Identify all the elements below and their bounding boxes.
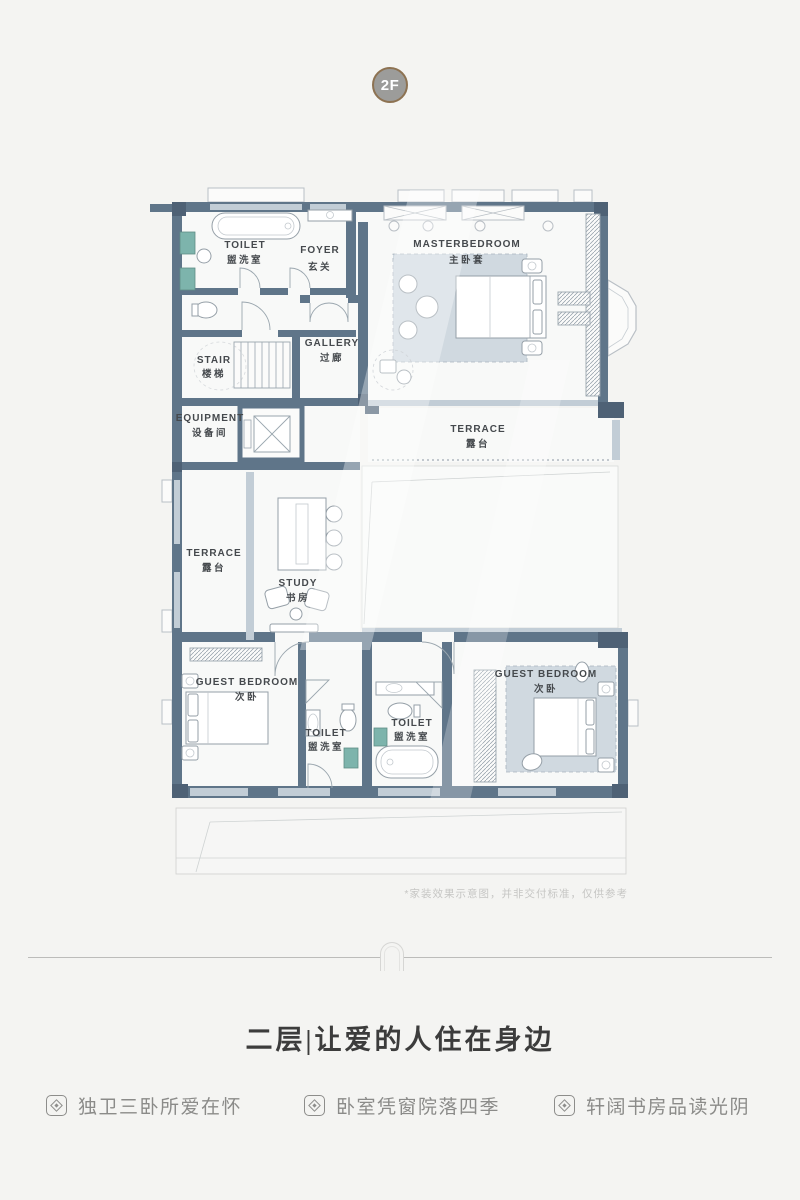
feature-item-3: 轩阔书房品读光阴 [554,1092,750,1119]
feature-item-1: 独卫三卧所爱在怀 [46,1092,242,1119]
vanity-cabinet [374,728,387,746]
label-terrace-right-en: TERRACE [450,424,505,435]
divider-ornament [380,942,404,971]
floor-plan: TOILET 盥洗室 FOYER 玄关 MASTERBEDROOM 主卧套 ST… [150,180,650,890]
label-stair-en: STAIR [197,355,231,366]
label-equipment-en: EQUIPMENT [176,413,244,424]
bay-window [608,280,636,356]
vanity-counter [376,682,434,695]
label-guest-left-cn: 次卧 [235,691,259,703]
label-guest-right-en: GUEST BEDROOM [495,669,597,680]
roof-outline [176,808,626,874]
label-foyer-cn: 玄关 [308,261,332,273]
label-terrace-right-cn: 露台 [466,438,490,450]
study-desk [278,498,326,570]
section-title: 二层|让爱的人住在身边 [0,1018,800,1057]
wc-toilet [388,703,412,719]
diamond-badge-icon [554,1095,575,1116]
label-study-en: STUDY [279,578,318,589]
vanity-cabinet [344,748,358,768]
label-toilet-main-cn: 盥洗室 [227,254,263,266]
divider-ornament-inner [384,946,400,971]
floor-badge: 2F [372,67,408,103]
feature-list: 独卫三卧所爱在怀 卧室凭窗院落四季 轩阔书房品读光阴 [0,1092,800,1122]
vanity-cabinet [180,268,195,290]
feature-label-1: 独卫三卧所爱在怀 [78,1092,242,1119]
feature-item-2: 卧室凭窗院落四季 [304,1092,500,1119]
label-guest-right-cn: 次卧 [534,683,558,695]
label-toilet-main-en: TOILET [224,240,265,251]
label-foyer-en: FOYER [300,245,339,256]
label-equipment-cn: 设备间 [192,427,228,439]
floorplan-page: 2F [0,0,800,1200]
diamond-badge-icon [46,1095,67,1116]
label-toilet-center-cn: 盥洗室 [394,731,430,743]
label-toilet-center-en: TOILET [391,718,432,729]
label-gallery-cn: 过廊 [320,352,344,364]
elevator [240,406,302,460]
label-gallery-en: GALLERY [305,338,359,349]
label-toilet-small-cn: 盥洗室 [308,741,344,753]
label-terrace-left-en: TERRACE [186,548,241,559]
label-master-cn: 主卧套 [449,254,485,266]
label-stair-cn: 楼梯 [202,368,226,380]
vanity-cabinet [180,232,195,254]
label-study-cn: 书房 [286,592,310,604]
feature-label-2: 卧室凭窗院落四季 [336,1092,500,1119]
label-guest-left-en: GUEST BEDROOM [196,677,298,688]
bathtub [376,746,438,778]
disclaimer-note: *家装效果示意图，并非交付标准，仅供参考 [404,886,628,901]
feature-label-3: 轩阔书房品读光阴 [586,1092,750,1119]
label-terrace-left-cn: 露台 [202,562,226,574]
label-toilet-small-en: TOILET [305,728,346,739]
wash-basin [197,249,211,263]
diamond-badge-icon [304,1095,325,1116]
label-master-en: MASTERBEDROOM [413,239,520,250]
